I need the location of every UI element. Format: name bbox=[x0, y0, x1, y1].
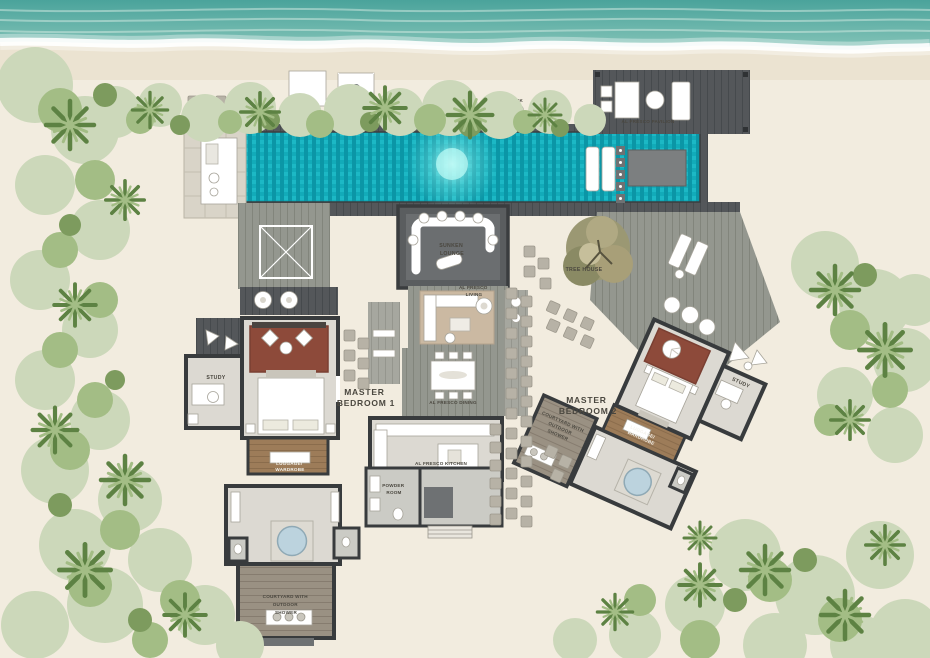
left-deck-pad bbox=[238, 203, 330, 289]
pool-platform bbox=[628, 150, 686, 186]
desk-chair bbox=[208, 392, 219, 403]
pool-lounger bbox=[586, 147, 599, 191]
tree-house-label: TREE HOUSE bbox=[566, 267, 603, 273]
study-left: STUDY bbox=[186, 356, 242, 428]
toilet bbox=[342, 537, 350, 547]
pavilion-chair bbox=[601, 86, 612, 97]
west-walkway bbox=[368, 302, 400, 384]
alfresco-pavilion: AL FRESCO PAVILION bbox=[593, 70, 750, 134]
sofa bbox=[424, 295, 436, 341]
kitchen-counter bbox=[374, 430, 387, 472]
alfresco-dining-area: AL FRESCO DINING bbox=[402, 348, 504, 420]
floor-plan: HAMMOCK AL FRE bbox=[0, 0, 930, 658]
alfresco-kitchen-label: AL FRESCO KITCHEN bbox=[415, 461, 468, 466]
bathroom-left bbox=[226, 486, 359, 564]
vanity bbox=[231, 492, 240, 522]
kitchen-counter bbox=[376, 424, 494, 436]
entry-steps bbox=[428, 526, 472, 538]
coffee-table bbox=[450, 318, 470, 331]
master-bedroom-2-label: MASTER BEDROOM 2 bbox=[559, 395, 617, 416]
powder-room: POWDER ROOM bbox=[366, 468, 422, 526]
pavilion-ottoman bbox=[646, 91, 664, 109]
pool-stools bbox=[616, 146, 625, 203]
vanity bbox=[331, 492, 339, 522]
bathtub bbox=[278, 527, 307, 556]
pool-glow-core bbox=[436, 148, 468, 180]
floor-plan-canvas: HAMMOCK AL FRE bbox=[0, 0, 930, 658]
sunken-lounge: SUNKEN LOUNGE bbox=[398, 206, 508, 288]
porch-shell-chairs bbox=[240, 287, 338, 315]
bed-bench bbox=[266, 370, 316, 377]
pool-lounger bbox=[602, 147, 615, 191]
alfresco-living-area: AL FRESCO LIVING bbox=[408, 285, 508, 348]
wardrobe-left: LUGGAGE/ WARDROBE bbox=[248, 438, 328, 474]
pavilion-lounger bbox=[672, 82, 690, 120]
toilet bbox=[234, 544, 242, 554]
study-left-label: STUDY bbox=[206, 375, 225, 381]
alfresco-dining-label: AL FRESCO DINING bbox=[429, 400, 477, 405]
wardrobe-left-label: LUGGAGE/ WARDROBE bbox=[275, 461, 304, 472]
pavilion-table bbox=[615, 82, 639, 118]
pavilion-label: AL FRESCO PAVILION bbox=[622, 119, 675, 124]
master-bedroom-1-label: MASTER BEDROOM 1 bbox=[337, 387, 395, 408]
